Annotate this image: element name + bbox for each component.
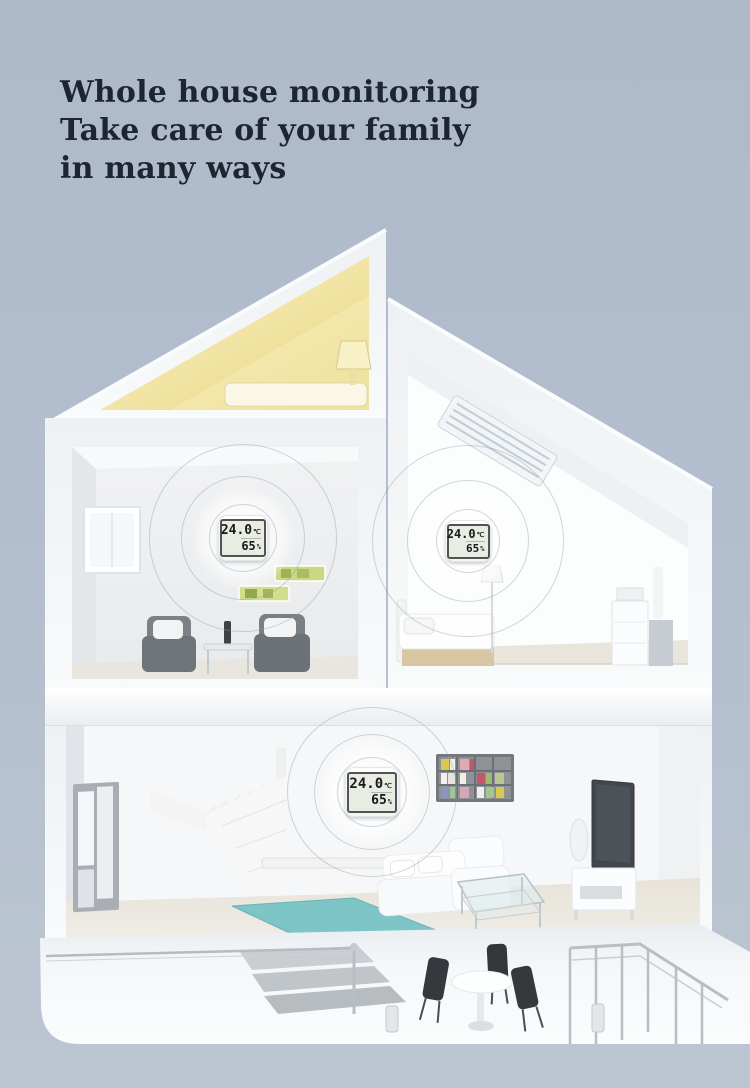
armchair-right [254, 614, 310, 672]
left-attic [52, 230, 386, 421]
living-room [45, 726, 712, 950]
attic-bedroom [388, 299, 712, 696]
headline-line-3: in many ways [60, 150, 520, 188]
attic-mattress [225, 383, 367, 406]
headline-line-1: Whole house monitoring [60, 74, 520, 112]
study-room [45, 418, 386, 700]
headline-line-2: Take care of your family [60, 112, 520, 150]
floor-vase [592, 1004, 604, 1032]
floor-vase [386, 1006, 398, 1032]
study-window [84, 507, 140, 573]
headline: Whole house monitoring Take care of your… [60, 74, 520, 188]
armchair-left [142, 616, 196, 672]
speaker [570, 819, 588, 861]
wall-bookshelf [436, 754, 514, 802]
living-window [73, 782, 119, 912]
floor-slab [45, 688, 712, 726]
terrace [40, 924, 750, 1044]
product-banner: Whole house monitoring Take care of your… [0, 0, 750, 1088]
